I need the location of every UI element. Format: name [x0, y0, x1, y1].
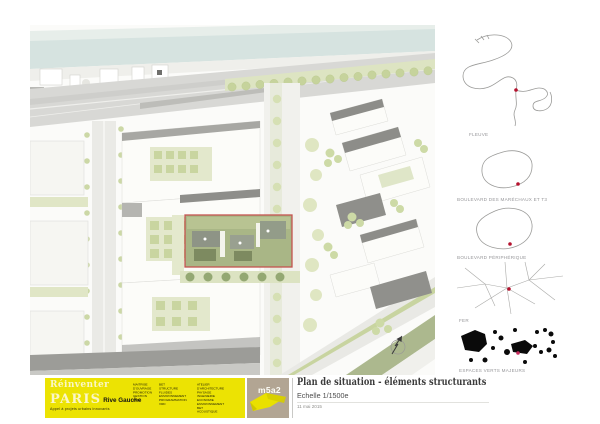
page-title: Plan de situation - éléments structurant…	[297, 376, 486, 388]
credits-column-3: ATELIER D'ARCHITECTURE PAYSAGE INGENIERI…	[197, 383, 245, 424]
legend-item-espaces-verts: ESPACES VERTS MAJEURS	[455, 322, 585, 373]
site-marker	[507, 287, 511, 291]
legend-item-fleuve: FLEUVE	[455, 30, 585, 137]
site-plan-map	[30, 25, 435, 375]
title-rule	[297, 402, 489, 403]
legend-item-fer: FER	[455, 260, 585, 323]
fleuve-diagram	[455, 30, 565, 130]
legend-item-marechaux: BOULEVARD DES MARÉCHAUX ET T3	[455, 148, 585, 202]
lot-name: m5a2	[258, 385, 281, 395]
espaces-verts-diagram	[455, 322, 565, 366]
date-label: 11 mai 2015	[297, 404, 322, 409]
site-marker	[508, 242, 512, 246]
site-marker	[516, 182, 520, 186]
legend-label: BOULEVARD DES MARÉCHAUX ET T3	[457, 197, 585, 202]
west-buildings	[30, 141, 88, 357]
project-site	[172, 215, 300, 283]
legend-label: FLEUVE	[469, 132, 585, 137]
brand-subtitle: Appel à projets urbains innovants	[50, 408, 141, 412]
reinventer-paris-logo: Réinventer PARISRive Gauche Appel à proj…	[50, 381, 141, 412]
presentation-board: FLEUVE BOULEVARD DES MARÉCHAUX ET T3 BOU…	[0, 0, 600, 424]
lot-logo: m5a2	[247, 378, 289, 418]
credits-column-2: BET STRUCTURE FLUIDES ENVIRONNEMENT PROG…	[159, 383, 199, 424]
legend-label: ESPACES VERTS MAJEURS	[459, 368, 585, 373]
banner-divider	[292, 378, 293, 418]
competition-banner: Réinventer PARISRive Gauche Appel à proj…	[45, 378, 245, 418]
legend-item-peripherique: BOULEVARD PÉRIPHÉRIQUE	[455, 206, 585, 260]
scale-label: Echelle 1/1500e	[297, 391, 349, 400]
brand-line1: Réinventer	[50, 381, 141, 390]
site-marker	[514, 88, 518, 92]
site-marker	[516, 351, 520, 355]
marechaux-diagram	[469, 148, 549, 194]
lot-ribbon-icon	[247, 378, 289, 418]
credits-column-1: MAITRISE D'OUVRAGE PROMOTION GESTION AMO	[133, 383, 159, 422]
peripherique-diagram	[467, 206, 547, 252]
fer-diagram	[455, 260, 565, 316]
brand-line2: PARIS	[50, 393, 101, 406]
